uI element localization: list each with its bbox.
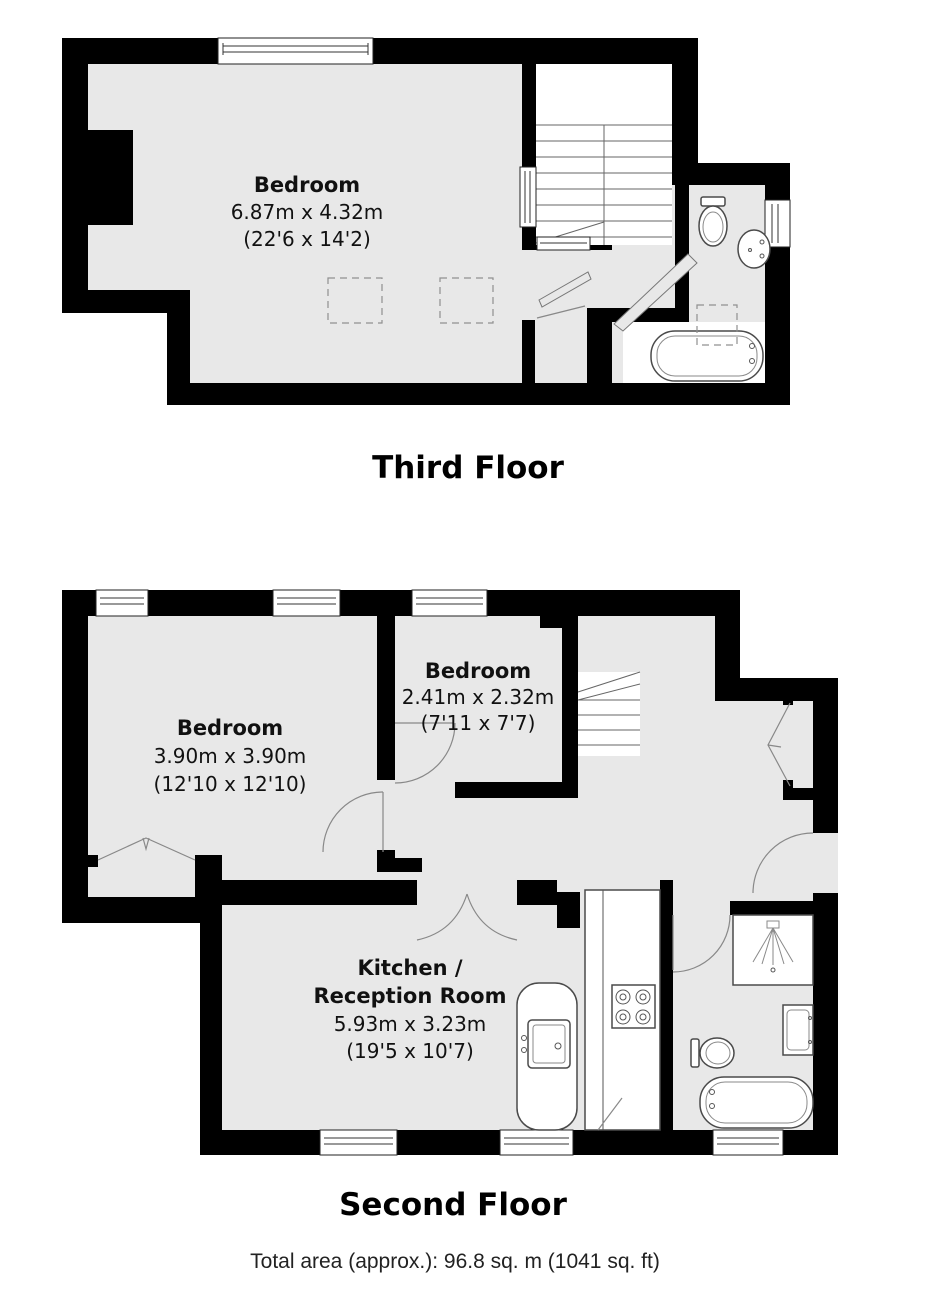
room-label: Bedroom [254, 173, 360, 197]
bedroom2-right-wall [562, 616, 578, 782]
stairs-icon [536, 64, 672, 245]
window-icon [520, 167, 536, 227]
shower-icon [733, 915, 813, 985]
kitchen-bath-partition [660, 880, 673, 1130]
room-label: Bedroom [425, 659, 531, 683]
bedroom2-bottom-wall [455, 782, 578, 798]
room-dim-metric: 3.90m x 3.90m [154, 744, 307, 768]
wall-stub [195, 855, 222, 905]
wall-step [557, 892, 580, 928]
window-icon [500, 1130, 573, 1155]
kitchen-top-wall [200, 880, 417, 905]
room-dim-imperial: (12'10 x 12'10) [154, 772, 307, 796]
room-label: Kitchen / [357, 956, 462, 980]
third-floor-plan: Bedroom 6.87m x 4.32m (22'6 x 14'2) Thir… [62, 38, 790, 486]
window-icon [96, 590, 148, 616]
room-label: Reception Room [314, 984, 507, 1008]
room-dim-imperial: (22'6 x 14'2) [243, 227, 371, 251]
bathroom-top-wall [730, 901, 813, 915]
window-icon [218, 38, 373, 64]
bedroom-partition [377, 616, 395, 780]
room-dim-metric: 2.41m x 2.32m [402, 685, 555, 709]
room-dim-metric: 5.93m x 3.23m [334, 1012, 487, 1036]
stove-icon [612, 985, 655, 1028]
floorplan-page: Bedroom 6.87m x 4.32m (22'6 x 14'2) Thir… [0, 0, 940, 1301]
bathtub-icon [700, 1077, 813, 1128]
wall-stub [377, 858, 422, 872]
room-dim-imperial: (19'5 x 10'7) [346, 1039, 474, 1063]
window-icon [537, 237, 590, 250]
closet-wall [522, 320, 535, 383]
closet-alcove [98, 855, 195, 897]
window-icon [412, 590, 487, 616]
stairwell-wall [522, 64, 536, 167]
floor-title: Third Floor [372, 450, 565, 486]
window-icon [273, 590, 340, 616]
bathtub-icon [651, 331, 763, 381]
room-dim-metric: 6.87m x 4.32m [231, 200, 384, 224]
sink-icon [783, 1005, 813, 1055]
second-floor-plan: Bedroom 3.90m x 3.90m (12'10 x 12'10) Be… [62, 590, 838, 1223]
floor-title: Second Floor [339, 1187, 567, 1223]
toilet-icon [699, 197, 727, 246]
stairs-icon [578, 672, 640, 756]
kitchen-island [517, 983, 577, 1130]
sink-icon [738, 230, 770, 268]
total-area-text: Total area (approx.): 96.8 sq. m (1041 s… [250, 1250, 660, 1273]
wall-stub [88, 855, 98, 867]
wall-notch [540, 616, 578, 628]
room-label: Bedroom [177, 716, 283, 740]
window-icon [713, 1130, 783, 1155]
floorplan-drawing: Bedroom 6.87m x 4.32m (22'6 x 14'2) Thir… [0, 0, 940, 1301]
kitchen-top-wall [517, 880, 557, 905]
hinge-block [783, 695, 793, 705]
toilet-icon [691, 1038, 734, 1068]
wall-stub [522, 237, 537, 250]
chimney-breast [62, 130, 133, 225]
window-icon [320, 1130, 397, 1155]
doorway-opening [813, 833, 838, 893]
room-dim-imperial: (7'11 x 7'7) [421, 711, 536, 735]
bathroom-partition [675, 185, 689, 323]
closet-wall [587, 322, 612, 383]
